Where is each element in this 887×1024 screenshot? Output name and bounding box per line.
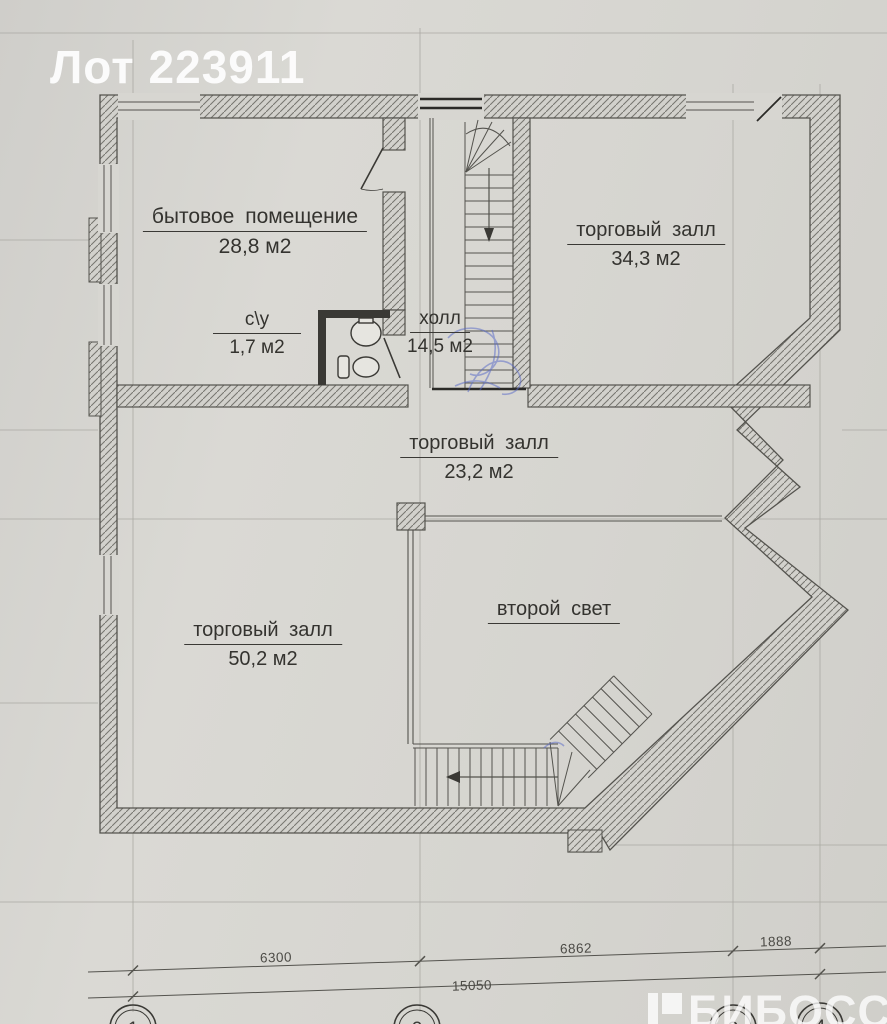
room-label-vtoroy-svet: второй свет [488,598,620,624]
dimension-6300: 6300 [260,949,293,965]
dimension-1888: 1888 [760,933,793,949]
toilet-icon [353,357,379,377]
brand-watermark-text: БИБОСС [688,989,887,1024]
room-label-bytovoe: бытовое помещение 28,8 м2 [143,205,367,259]
room-label-torgovy-502: торговый залл 50,2 м2 [184,619,342,671]
grid-bubble-2: 2 [412,1019,423,1024]
grid-bubble-1: 1 [128,1019,139,1024]
wc-fixtures [318,310,390,385]
dimension-6862: 6862 [560,940,593,956]
dimension-total-15050: 15050 [452,977,493,993]
room-name: бытовое помещение [143,205,367,232]
lot-watermark: Лот 223911 [50,40,306,94]
room-label-su: с\у 1,7 м2 [213,309,301,359]
room-area: 1,7 м2 [213,337,301,359]
room-area: 14,5 м2 [407,336,473,358]
room-name: холл [410,308,470,333]
room-label-hall: холл 14,5 м2 [407,308,473,358]
room-area: 28,8 м2 [143,235,367,259]
room-area: 34,3 м2 [567,248,725,271]
brand-watermark: БИБОСС [648,989,887,1024]
room-area: 50,2 м2 [184,648,342,671]
room-name: с\у [213,309,301,334]
room-area: 23,2 м2 [400,461,558,484]
room-name: торговый залл [184,619,342,645]
brand-logo-icon [648,993,682,1024]
room-label-torgovy-343: торговый залл 34,3 м2 [567,219,725,271]
room-name: торговый залл [567,219,725,245]
sink-icon [351,320,381,346]
floorplan-drawing: 1 2 3 4 [0,0,887,1024]
room-name: второй свет [488,598,620,624]
column [397,503,425,530]
room-name: торговый залл [400,432,558,458]
floorplan-photo: 1 2 3 4 бытовое помещение 28,8 м2 торгов… [0,0,887,1024]
void-partitions [408,516,722,744]
room-label-torgovy-232: торговый залл 23,2 м2 [400,432,558,484]
